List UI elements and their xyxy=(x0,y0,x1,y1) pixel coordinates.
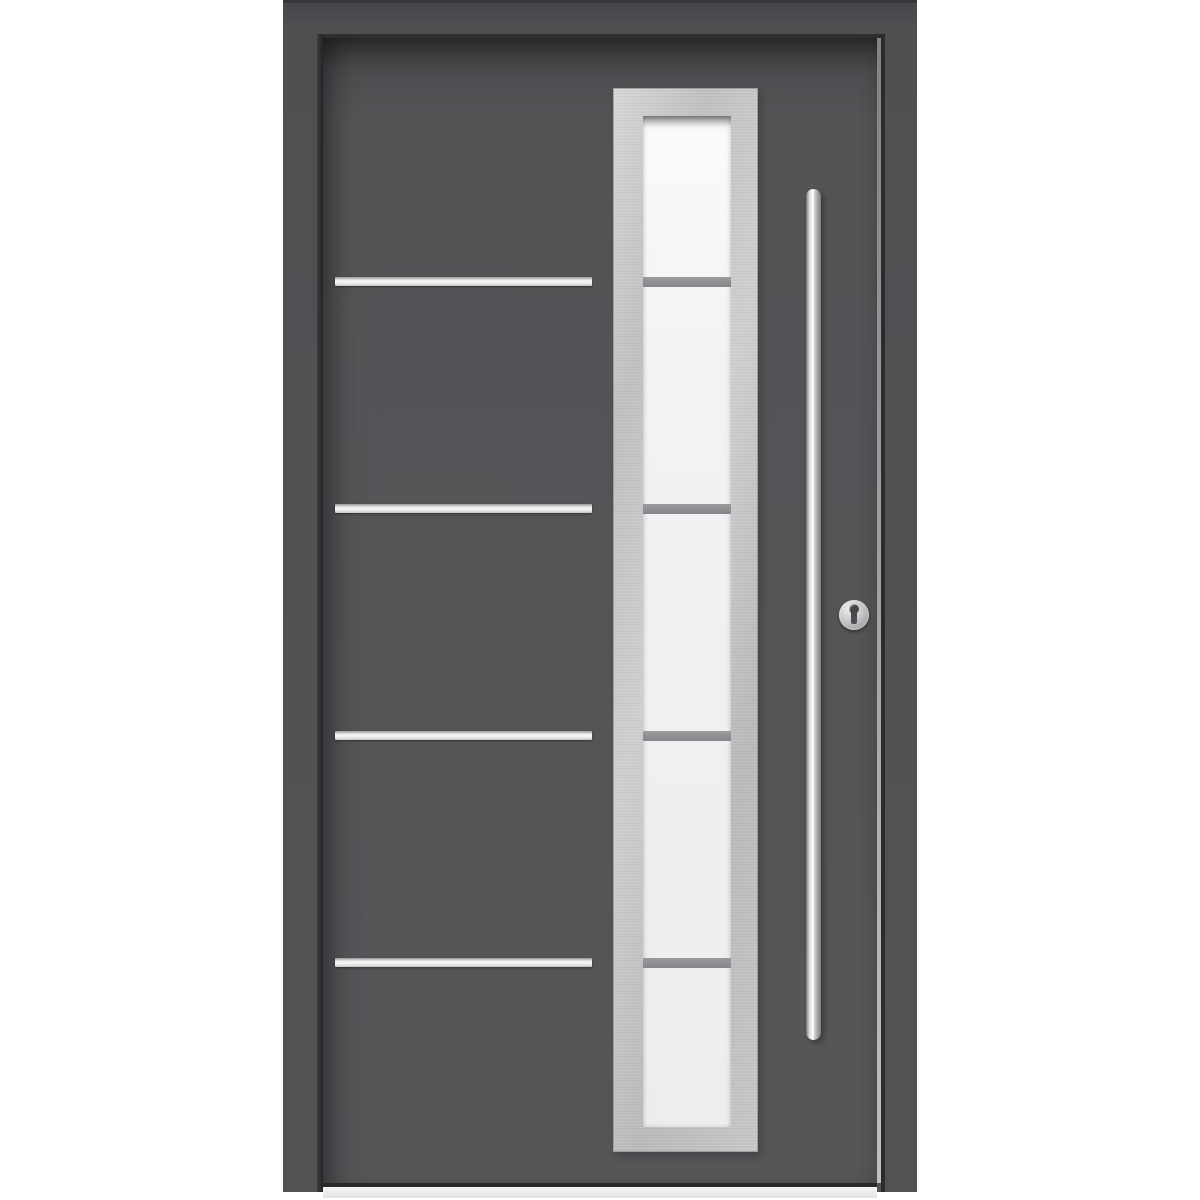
glazing-steel-frame xyxy=(613,88,758,1152)
inlay-stripe xyxy=(335,731,592,740)
inlay-stripe xyxy=(335,504,592,513)
glass-divider xyxy=(643,277,731,287)
frame-leaf-gap-right xyxy=(881,34,885,1192)
lock-cylinder-escutcheon xyxy=(839,600,869,630)
keyhole-slot xyxy=(851,610,857,624)
glass-divider xyxy=(643,731,731,741)
threshold xyxy=(323,1187,877,1198)
product-photo-stage xyxy=(0,0,1200,1200)
frosted-glass-panel xyxy=(643,116,731,1127)
inlay-stripe xyxy=(335,958,592,967)
door-leaf xyxy=(323,38,877,1183)
leaf-edge-highlight xyxy=(877,38,881,1183)
inlay-stripe xyxy=(335,277,592,286)
bar-handle xyxy=(806,189,821,1040)
glass-divider xyxy=(643,504,731,514)
glass-divider xyxy=(643,958,731,968)
frame-top-edge-line xyxy=(283,0,917,3)
